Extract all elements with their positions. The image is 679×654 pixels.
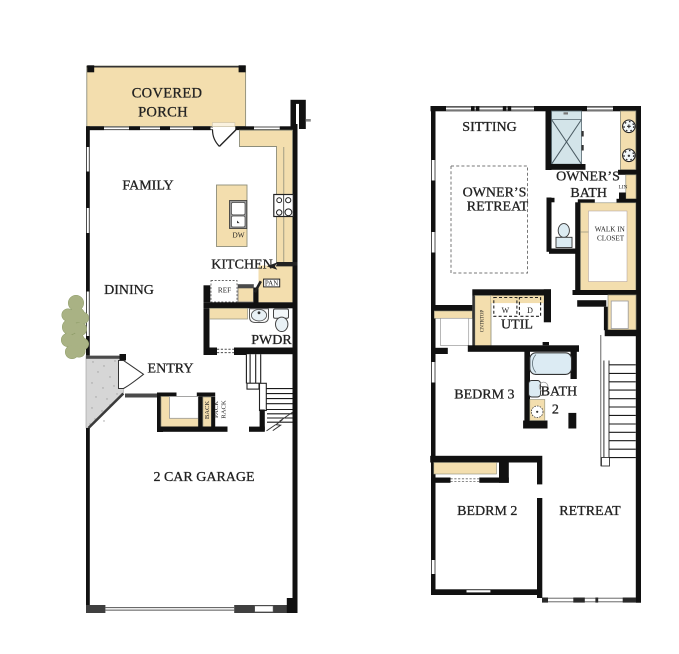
svg-text:BEDRM 2: BEDRM 2 bbox=[457, 504, 517, 519]
svg-text:KITCHEN: KITCHEN bbox=[211, 258, 272, 273]
svg-text:UTIL: UTIL bbox=[501, 318, 533, 333]
svg-text:PAN: PAN bbox=[265, 279, 278, 287]
svg-text:D: D bbox=[527, 306, 533, 315]
svg-text:COVERED: COVERED bbox=[132, 85, 203, 101]
svg-text:2 CAR GARAGE: 2 CAR GARAGE bbox=[153, 470, 254, 485]
svg-text:DW: DW bbox=[233, 231, 245, 239]
svg-text:WALK IN: WALK IN bbox=[595, 225, 626, 233]
svg-text:RETREAT: RETREAT bbox=[559, 504, 621, 519]
svg-text:RACK: RACK bbox=[221, 400, 228, 419]
svg-text:LIN: LIN bbox=[619, 185, 628, 191]
svg-text:FAMILY: FAMILY bbox=[122, 179, 173, 194]
svg-text:RETREAT: RETREAT bbox=[467, 200, 529, 215]
svg-text:BEDRM 3: BEDRM 3 bbox=[454, 387, 514, 402]
svg-text:2: 2 bbox=[552, 402, 559, 417]
svg-text:DINING: DINING bbox=[104, 283, 154, 298]
svg-text:CLOSET: CLOSET bbox=[597, 235, 625, 243]
svg-text:CNTRTOP: CNTRTOP bbox=[481, 310, 486, 333]
svg-text:PORCH: PORCH bbox=[138, 104, 188, 120]
svg-text:OWNER’S: OWNER’S bbox=[556, 169, 620, 184]
svg-text:W: W bbox=[502, 306, 510, 315]
svg-text:ENTRY: ENTRY bbox=[148, 361, 194, 376]
svg-text:REF: REF bbox=[218, 287, 231, 295]
svg-text:PWDR: PWDR bbox=[251, 333, 292, 348]
svg-text:BACK: BACK bbox=[204, 401, 211, 420]
svg-text:BATH: BATH bbox=[541, 385, 578, 400]
svg-text:PACK: PACK bbox=[213, 401, 220, 418]
svg-text:OWNER’S: OWNER’S bbox=[463, 185, 527, 200]
svg-text:SITTING: SITTING bbox=[462, 120, 516, 135]
svg-text:BATH: BATH bbox=[570, 186, 607, 201]
